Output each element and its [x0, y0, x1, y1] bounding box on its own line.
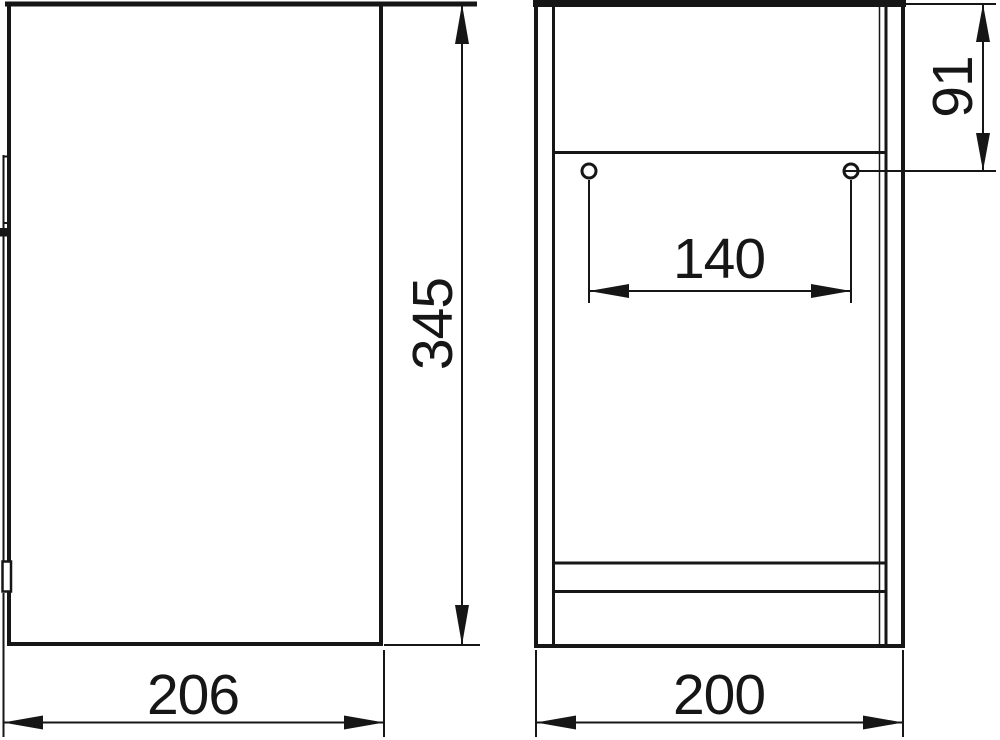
hole-offset-label: 91	[921, 56, 985, 117]
technical-drawing-canvas: 345 206 200 140	[0, 0, 1000, 740]
side-view-outline	[9, 4, 381, 644]
front-view	[533, 4, 906, 647]
mounting-hole-left	[582, 164, 596, 178]
hole-offset-arrow-bottom	[976, 133, 990, 171]
depth-dim-arrow-left	[3, 716, 43, 730]
side-hinge-block	[0, 228, 9, 237]
width-dim-label: 200	[673, 663, 765, 727]
hole-offset-arrow-top	[976, 4, 990, 42]
dimension-width: 200	[536, 650, 903, 737]
width-dim-arrow-left	[536, 716, 576, 730]
hole-spacing-label: 140	[673, 227, 765, 291]
height-dim-label: 345	[401, 278, 465, 370]
width-dim-arrow-right	[863, 716, 903, 730]
front-view-outline	[536, 5, 903, 646]
height-dim-arrow-bottom	[455, 605, 469, 645]
depth-dim-arrow-right	[344, 716, 384, 730]
dimension-height: 345	[384, 4, 480, 645]
depth-dim-label: 206	[147, 663, 239, 727]
height-dim-arrow-top	[455, 4, 469, 44]
side-bottom-hinge-bracket	[3, 562, 12, 592]
drawing-svg: 345 206 200 140	[0, 0, 1000, 740]
